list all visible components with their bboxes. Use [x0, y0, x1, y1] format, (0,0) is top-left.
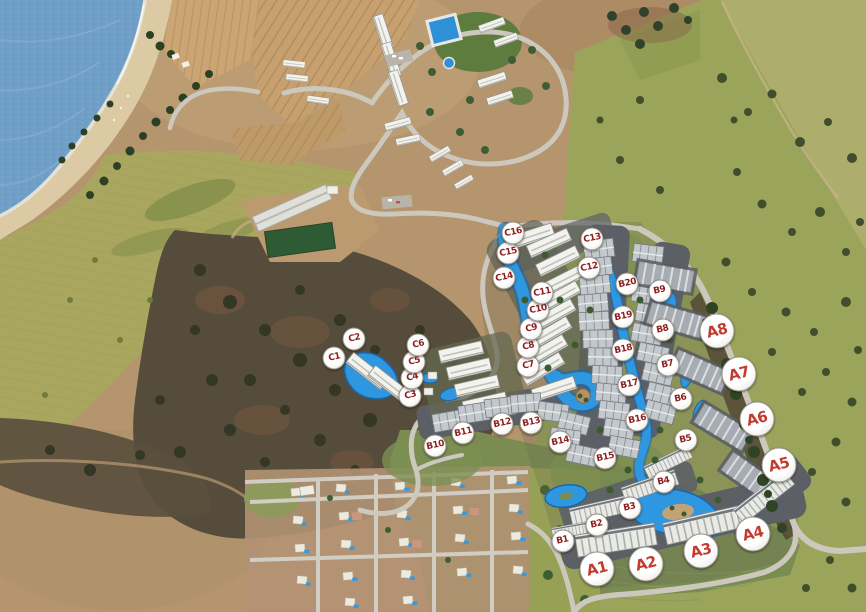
marker-label: A4	[741, 524, 765, 544]
marker-B19[interactable]: B19	[612, 306, 635, 329]
marker-C11[interactable]: C11	[531, 282, 554, 305]
marker-A1[interactable]: A1	[580, 552, 615, 587]
marker-label: B12	[492, 418, 511, 431]
marker-B17[interactable]: B17	[618, 374, 641, 397]
marker-label: A1	[585, 559, 609, 579]
marker-label: C7	[521, 360, 534, 371]
marker-label: C5	[407, 356, 420, 367]
marker-label: C10	[528, 304, 547, 316]
marker-label: B4	[657, 476, 671, 487]
marker-label: B11	[453, 427, 472, 440]
marker-B2[interactable]: B2	[586, 514, 609, 537]
marker-B11[interactable]: B11	[452, 422, 475, 445]
marker-label: A2	[634, 554, 658, 574]
marker-B15[interactable]: B15	[594, 447, 617, 470]
marker-C1[interactable]: C1	[323, 347, 346, 370]
marker-B1[interactable]: B1	[552, 530, 575, 553]
marker-label: B17	[619, 379, 638, 392]
marker-label: B14	[550, 436, 569, 449]
marker-label: A7	[727, 364, 751, 384]
marker-label: B10	[425, 440, 444, 453]
marker-B6[interactable]: B6	[670, 388, 693, 411]
marker-label: B15	[595, 452, 614, 465]
marker-label: B7	[661, 359, 675, 370]
marker-label: C15	[498, 247, 517, 259]
marker-label: B13	[521, 417, 540, 430]
marker-label: A3	[689, 541, 713, 561]
marker-label: B20	[617, 278, 636, 291]
marker-B14[interactable]: B14	[549, 431, 572, 454]
marker-B20[interactable]: B20	[616, 273, 639, 296]
marker-label: B8	[656, 324, 670, 335]
marker-A7[interactable]: A7	[722, 357, 757, 392]
site-map: A1A2A3A4A5A6A7A8B1B2B3B4B5B6B7B8B9B10B11…	[0, 0, 866, 612]
marker-label: A8	[705, 321, 729, 341]
marker-label: C4	[405, 372, 418, 383]
marker-label: A5	[767, 455, 791, 475]
marker-B18[interactable]: B18	[612, 339, 635, 362]
marker-A2[interactable]: A2	[629, 547, 664, 582]
marker-label: B6	[674, 393, 688, 404]
marker-label: B16	[627, 414, 646, 427]
marker-A3[interactable]: A3	[684, 534, 719, 569]
marker-label: C16	[503, 227, 522, 239]
marker-A8[interactable]: A8	[700, 314, 735, 349]
marker-label: C12	[579, 262, 598, 274]
marker-label: C9	[524, 323, 537, 334]
marker-label: C3	[403, 390, 416, 401]
marker-C12[interactable]: C12	[578, 257, 601, 280]
marker-A6[interactable]: A6	[740, 402, 775, 437]
marker-label: B19	[613, 311, 632, 324]
marker-label: A6	[745, 409, 769, 429]
marker-label: C11	[532, 287, 551, 299]
marker-C13[interactable]: C13	[581, 228, 604, 251]
marker-label: C6	[411, 339, 424, 350]
marker-A5[interactable]: A5	[762, 448, 797, 483]
marker-A4[interactable]: A4	[736, 517, 771, 552]
marker-label: B18	[613, 344, 632, 357]
marker-B7[interactable]: B7	[657, 354, 680, 377]
marker-label: B1	[556, 535, 570, 546]
marker-label: C2	[347, 333, 360, 344]
marker-label: C14	[494, 272, 513, 284]
marker-B12[interactable]: B12	[491, 413, 514, 436]
marker-label: B5	[679, 434, 693, 445]
marker-B8[interactable]: B8	[652, 319, 675, 342]
plot-markers-layer: A1A2A3A4A5A6A7A8B1B2B3B4B5B6B7B8B9B10B11…	[0, 0, 866, 612]
marker-label: B9	[653, 285, 667, 296]
marker-label: C8	[521, 341, 534, 352]
marker-B4[interactable]: B4	[653, 471, 676, 494]
marker-C15[interactable]: C15	[497, 242, 520, 265]
marker-B16[interactable]: B16	[626, 409, 649, 432]
marker-C6[interactable]: C6	[407, 334, 430, 357]
marker-B13[interactable]: B13	[520, 412, 543, 435]
marker-B9[interactable]: B9	[649, 280, 672, 303]
marker-B3[interactable]: B3	[619, 497, 642, 520]
marker-label: B2	[590, 519, 604, 530]
marker-C2[interactable]: C2	[343, 328, 366, 351]
marker-label: C13	[582, 233, 601, 245]
marker-C16[interactable]: C16	[502, 222, 525, 245]
marker-B10[interactable]: B10	[424, 435, 447, 458]
marker-label: B3	[623, 502, 637, 513]
marker-B5[interactable]: B5	[675, 429, 698, 452]
marker-label: C1	[327, 352, 340, 363]
marker-C14[interactable]: C14	[493, 267, 516, 290]
